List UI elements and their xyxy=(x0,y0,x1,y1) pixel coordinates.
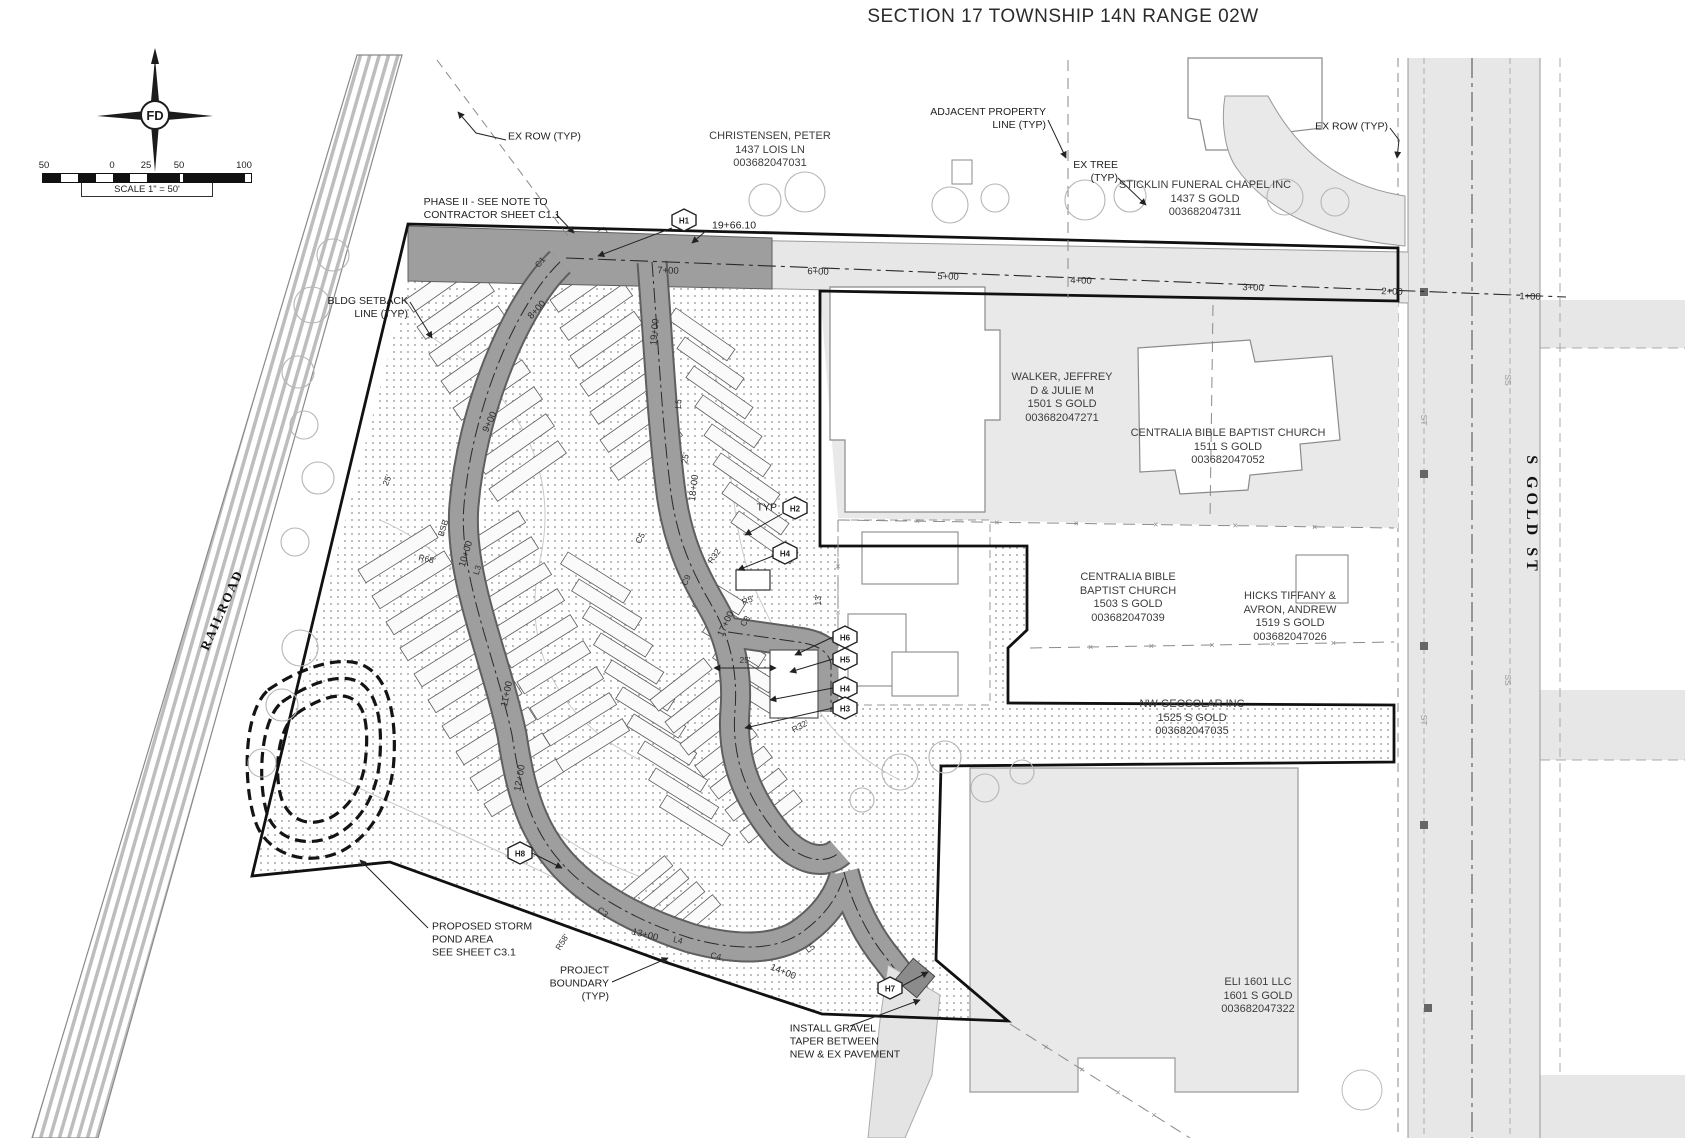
svg-text:×: × xyxy=(1074,518,1079,528)
svg-text:×: × xyxy=(835,608,840,618)
eli-building xyxy=(970,768,1382,1110)
svg-text:×: × xyxy=(1115,1087,1120,1097)
sticklin-buildings xyxy=(952,58,1405,246)
hicks-building xyxy=(1296,555,1348,603)
svg-text:×: × xyxy=(835,561,840,571)
svg-text:×: × xyxy=(1153,520,1158,530)
compass-logo: FD xyxy=(146,108,163,123)
svg-text:×: × xyxy=(835,654,840,664)
svg-text:×: × xyxy=(994,517,999,527)
svg-text:×: × xyxy=(1079,1065,1084,1075)
proposed-top-road xyxy=(408,226,772,289)
plan-linework: ×××××××××××××××××× FD xyxy=(0,0,1685,1138)
centralia-1503-pocket xyxy=(838,520,990,705)
svg-text:×: × xyxy=(1331,638,1336,648)
svg-text:×: × xyxy=(1233,521,1238,531)
svg-text:×: × xyxy=(1088,642,1093,652)
site-plan: ×××××××××××××××××× FD SECTION 17 TOWNSHI… xyxy=(0,0,1685,1138)
svg-text:×: × xyxy=(915,516,920,526)
gold-street-band xyxy=(1398,58,1685,1138)
svg-text:×: × xyxy=(1209,640,1214,650)
svg-text:×: × xyxy=(1312,522,1317,532)
svg-text:×: × xyxy=(1151,1110,1156,1120)
north-compass: FD xyxy=(97,48,213,172)
svg-text:×: × xyxy=(1043,1042,1048,1052)
svg-text:×: × xyxy=(1149,641,1154,651)
walker-building xyxy=(830,287,1000,512)
svg-text:×: × xyxy=(1270,639,1275,649)
